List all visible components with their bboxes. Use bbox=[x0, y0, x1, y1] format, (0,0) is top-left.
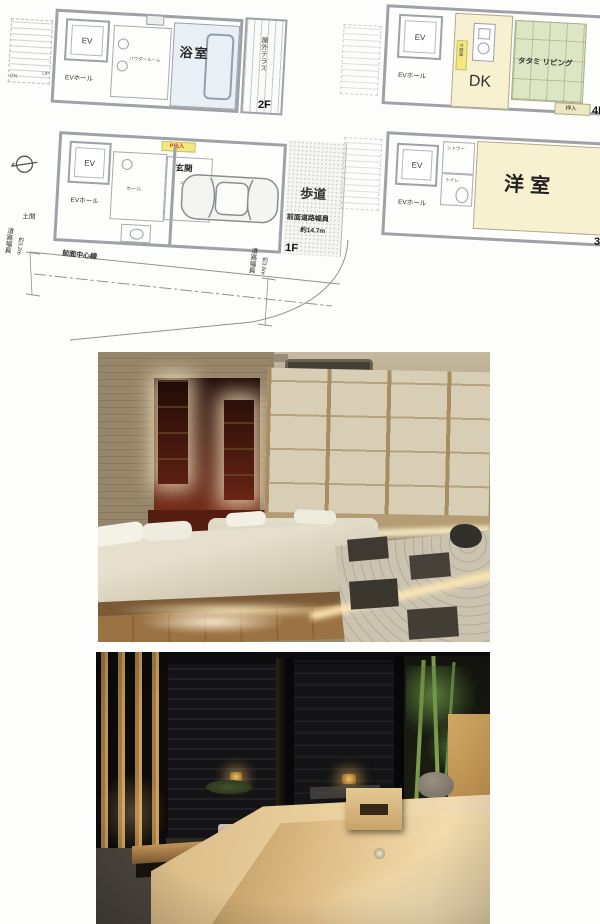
kitchen-island-icon bbox=[472, 23, 496, 62]
elevator-1f: EV bbox=[67, 141, 111, 185]
north-compass-icon bbox=[9, 150, 40, 178]
floor-light-reflection bbox=[138, 610, 288, 634]
elevator-3f: EV bbox=[395, 143, 439, 187]
bedroom-photo bbox=[98, 352, 490, 642]
doma-label: 土間 bbox=[22, 213, 35, 221]
floor-plan-4f: EV EVホール 冷蔵庫 DK タタミ リビング 押入 bbox=[339, 0, 600, 124]
floor-plan-2f: DN UP EV EVホール パウダールーム 浴室 屋外テラス bbox=[2, 4, 298, 128]
bathroom-2f: 浴室 bbox=[170, 22, 241, 110]
basin-icon bbox=[116, 60, 128, 72]
toilet-icon bbox=[455, 187, 469, 204]
stairs-up-label: UP bbox=[42, 72, 49, 78]
powder-room-label: パウダールーム bbox=[129, 57, 161, 64]
ev-hall-label-3f: EVホール bbox=[398, 199, 427, 208]
sink-icon bbox=[478, 28, 491, 40]
stairs-4f bbox=[340, 24, 382, 96]
ev-label: EV bbox=[414, 32, 425, 42]
floor-label-3f: 3F bbox=[594, 236, 600, 248]
front-road-label: 前面道路幅員 bbox=[287, 214, 329, 224]
fridge-tag: 冷蔵庫 bbox=[455, 40, 468, 71]
shower-label: シャワー bbox=[447, 146, 465, 152]
building-outline-4f: EV EVホール 冷蔵庫 DK タタミ リビング 押入 bbox=[381, 4, 600, 115]
terrace-label: 屋外テラス bbox=[259, 36, 269, 71]
ev-label: EV bbox=[82, 36, 93, 46]
photo-vignette bbox=[96, 652, 490, 924]
ev-hall-label-4f: EVホール bbox=[398, 72, 427, 81]
stairs-3f bbox=[341, 137, 383, 211]
western-room-3f: 洋室 bbox=[473, 141, 600, 236]
shower-room-3f: シャワー bbox=[442, 141, 476, 175]
toilet-label: トイレ bbox=[445, 178, 459, 184]
stepping-stone bbox=[407, 606, 459, 639]
fridge-label: 冷蔵庫 bbox=[458, 43, 464, 57]
hall-1f: ホール bbox=[110, 151, 168, 222]
floor-plan-3f: EV EVホール シャワー トイレ 洋室 bbox=[339, 125, 600, 259]
pillow-icon bbox=[226, 511, 267, 528]
ev-hall-label-2f: EVホール bbox=[65, 74, 94, 83]
floor-label-4f: 4F bbox=[592, 105, 600, 117]
dk-label: DK bbox=[468, 73, 491, 92]
bath-photo bbox=[96, 652, 490, 924]
bathroom-label: 浴室 bbox=[179, 46, 210, 62]
scanned-property-flyer-page: { "plans": { "f2": {"label":"2F","ev":"E… bbox=[0, 0, 600, 924]
sink-icon bbox=[477, 42, 490, 55]
ev-label: EV bbox=[84, 158, 95, 168]
basin-icon bbox=[118, 38, 130, 50]
stepping-stone bbox=[349, 578, 399, 609]
building-outline-3f: EV EVホール シャワー トイレ 洋室 bbox=[381, 131, 600, 246]
sidewalk-label: 歩道 bbox=[300, 187, 327, 203]
stairs-dn-label: DN bbox=[10, 74, 18, 80]
shoji-screen-wall bbox=[264, 368, 490, 523]
basin-icon bbox=[121, 159, 133, 171]
hall-label: ホール bbox=[126, 187, 141, 193]
road-width-left: 道路幅員 約3.2m bbox=[2, 227, 25, 260]
tatami-living-label: タタミ リビング bbox=[518, 57, 573, 68]
powder-room-2f: パウダールーム bbox=[110, 25, 172, 100]
paper-lantern-light bbox=[158, 380, 188, 484]
building-outline-2f: EV EVホール パウダールーム 浴室 bbox=[51, 9, 244, 113]
garden-rock bbox=[450, 524, 482, 548]
paper-lantern-light bbox=[224, 400, 254, 500]
floor-label-2f: 2F bbox=[258, 99, 271, 111]
bathtub-icon bbox=[203, 33, 235, 100]
road-width-right: 道路幅員 約3.6m bbox=[246, 247, 269, 280]
ev-label: EV bbox=[411, 160, 422, 170]
pillow-icon bbox=[294, 509, 337, 525]
closet-4f: 押入 bbox=[554, 102, 591, 116]
western-room-label: 洋室 bbox=[504, 173, 557, 198]
tatami-living-4f: タタミ リビング bbox=[511, 20, 587, 104]
stepping-stone bbox=[409, 552, 451, 579]
closet-label: 押入 bbox=[565, 106, 576, 113]
ev-hall-label-1f: EVホール bbox=[70, 197, 99, 206]
stepping-stone bbox=[347, 536, 389, 561]
elevator-2f: EV bbox=[64, 18, 110, 62]
dk-room-4f: 冷蔵庫 DK bbox=[450, 13, 513, 110]
elevator-4f: EV bbox=[397, 14, 443, 60]
pillow-icon bbox=[141, 520, 192, 541]
wc-fixture-icon bbox=[146, 15, 165, 26]
toilet-room-3f: トイレ bbox=[440, 173, 474, 207]
car-icon bbox=[178, 163, 282, 234]
